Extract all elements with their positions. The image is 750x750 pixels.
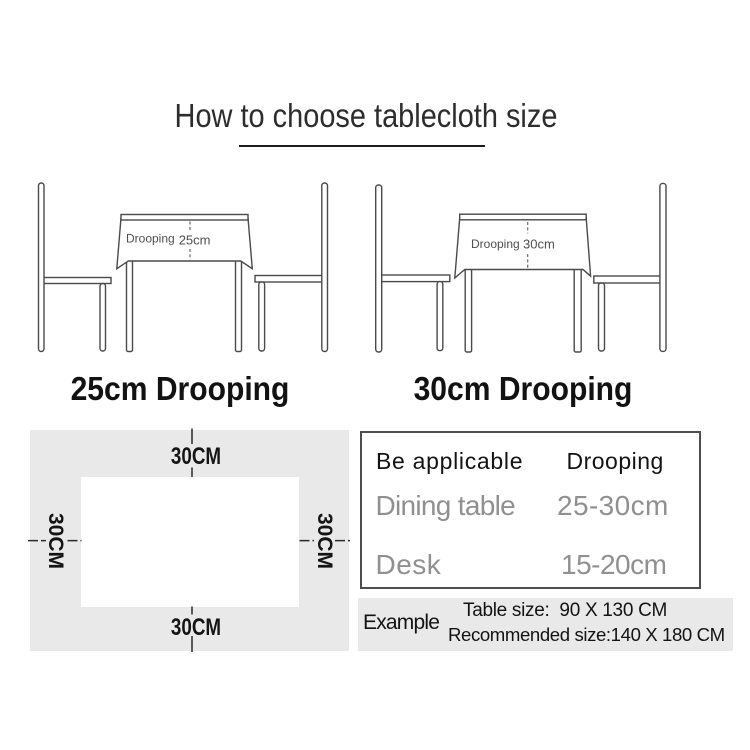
svg-text:25cm: 25cm [179, 233, 211, 248]
svg-text:Drooping: Drooping [471, 237, 520, 251]
svg-text:30cm: 30cm [523, 237, 555, 252]
svg-text:Drooping: Drooping [126, 232, 175, 246]
